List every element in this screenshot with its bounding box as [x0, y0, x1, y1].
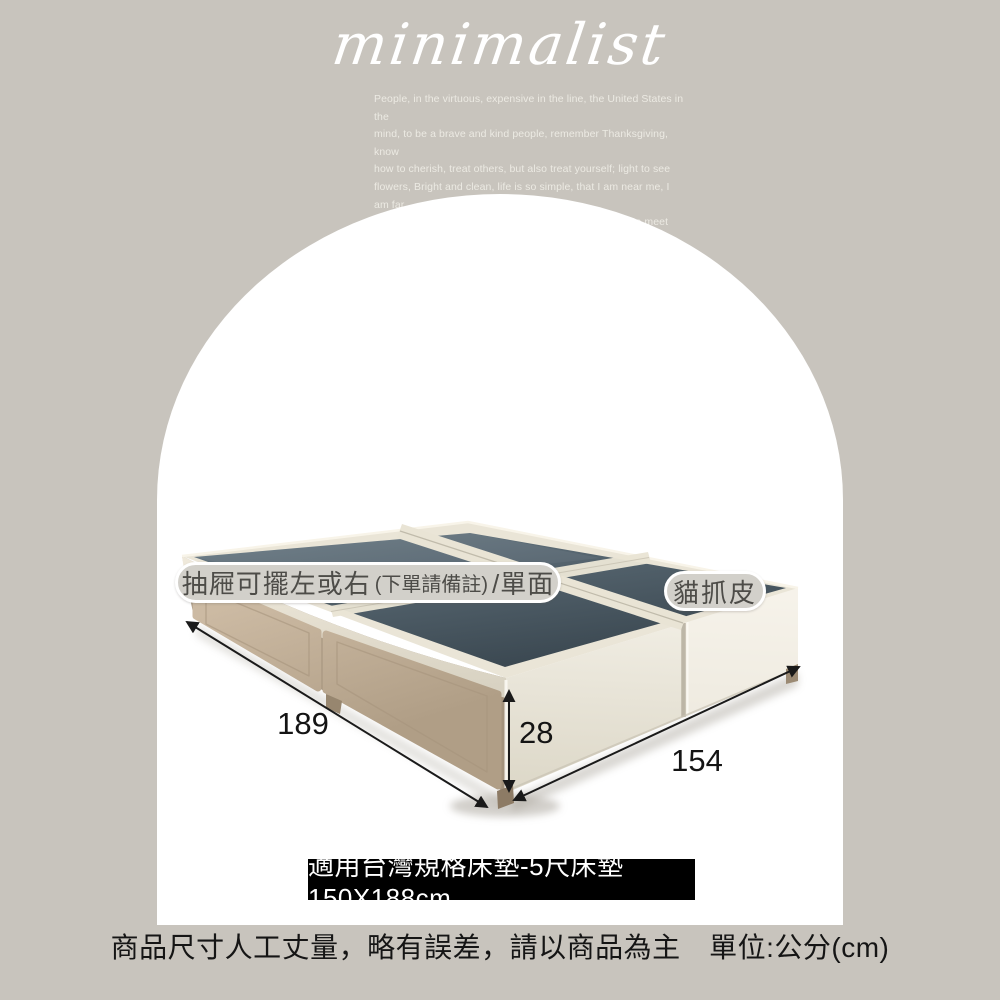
product-infographic: minimalist People, in the virtuous, expe…: [0, 0, 1000, 1000]
drawer-order-note: (下單請備註): [375, 568, 488, 597]
single-side-text: /單面: [492, 564, 554, 601]
length-value: 189: [277, 706, 329, 741]
material-callout: 貓抓皮: [664, 571, 766, 611]
height-value: 28: [519, 715, 553, 750]
brand-script-title: minimalist: [0, 12, 1000, 78]
drawer-option-callout: 抽屜可擺左或右 (下單請備註) /單面: [175, 562, 561, 603]
width-value: 154: [671, 743, 723, 778]
drawer-option-text: 抽屜可擺左或右: [182, 564, 371, 601]
bed-base-illustration: 189 28 154: [150, 480, 850, 840]
measurement-disclaimer: 商品尺寸人工丈量，略有誤差，請以商品為主 單位:公分(cm): [0, 926, 1000, 966]
mattress-size-banner: 適用台灣規格床墊-5尺床墊150X188cm: [308, 859, 695, 900]
material-text: 貓抓皮: [673, 573, 757, 610]
